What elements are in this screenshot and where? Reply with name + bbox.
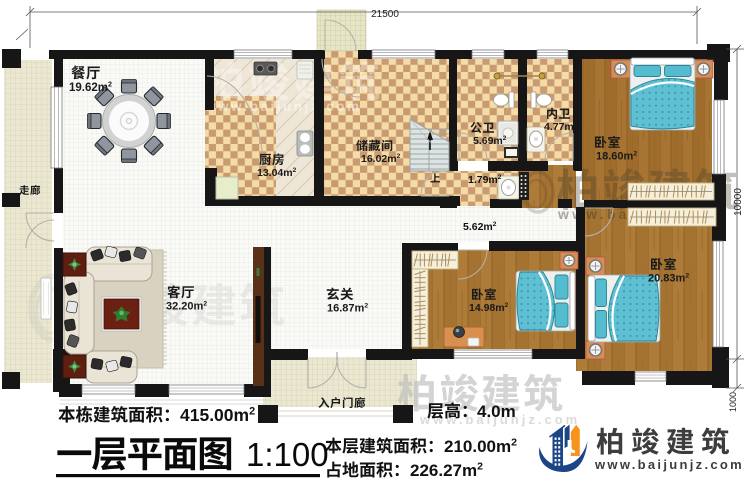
- svg-text:4.0m: 4.0m: [477, 402, 516, 421]
- svg-text:226.27m2: 226.27m2: [410, 461, 483, 480]
- svg-text:www.baijunjz.com: www.baijunjz.com: [204, 99, 362, 114]
- svg-text:www.baijunjz.com: www.baijunjz.com: [594, 457, 744, 472]
- svg-text:18.60m2: 18.60m2: [596, 150, 637, 162]
- svg-text:210.00m2: 210.00m2: [444, 437, 517, 456]
- svg-text:1000: 1000: [728, 392, 738, 412]
- svg-text:21500: 21500: [371, 9, 399, 20]
- svg-text:10000: 10000: [733, 188, 744, 216]
- svg-text:14.98m2: 14.98m2: [469, 302, 509, 314]
- svg-text:4.77m2: 4.77m2: [544, 121, 578, 133]
- svg-text:32.20m2: 32.20m2: [166, 300, 207, 312]
- svg-text:1:100: 1:100: [246, 436, 329, 473]
- svg-text:5.62m2: 5.62m2: [463, 221, 497, 233]
- svg-text:1.79m2: 1.79m2: [468, 174, 502, 186]
- svg-text:13.04m2: 13.04m2: [257, 167, 297, 179]
- svg-text:5.69m2: 5.69m2: [473, 135, 507, 147]
- svg-text:16.87m2: 16.87m2: [327, 302, 368, 314]
- svg-text:415.00m2: 415.00m2: [180, 405, 255, 425]
- svg-text:19.62m2: 19.62m2: [69, 81, 112, 94]
- svg-text:16.02m2: 16.02m2: [361, 153, 401, 165]
- svg-text:20.83m2: 20.83m2: [648, 272, 689, 284]
